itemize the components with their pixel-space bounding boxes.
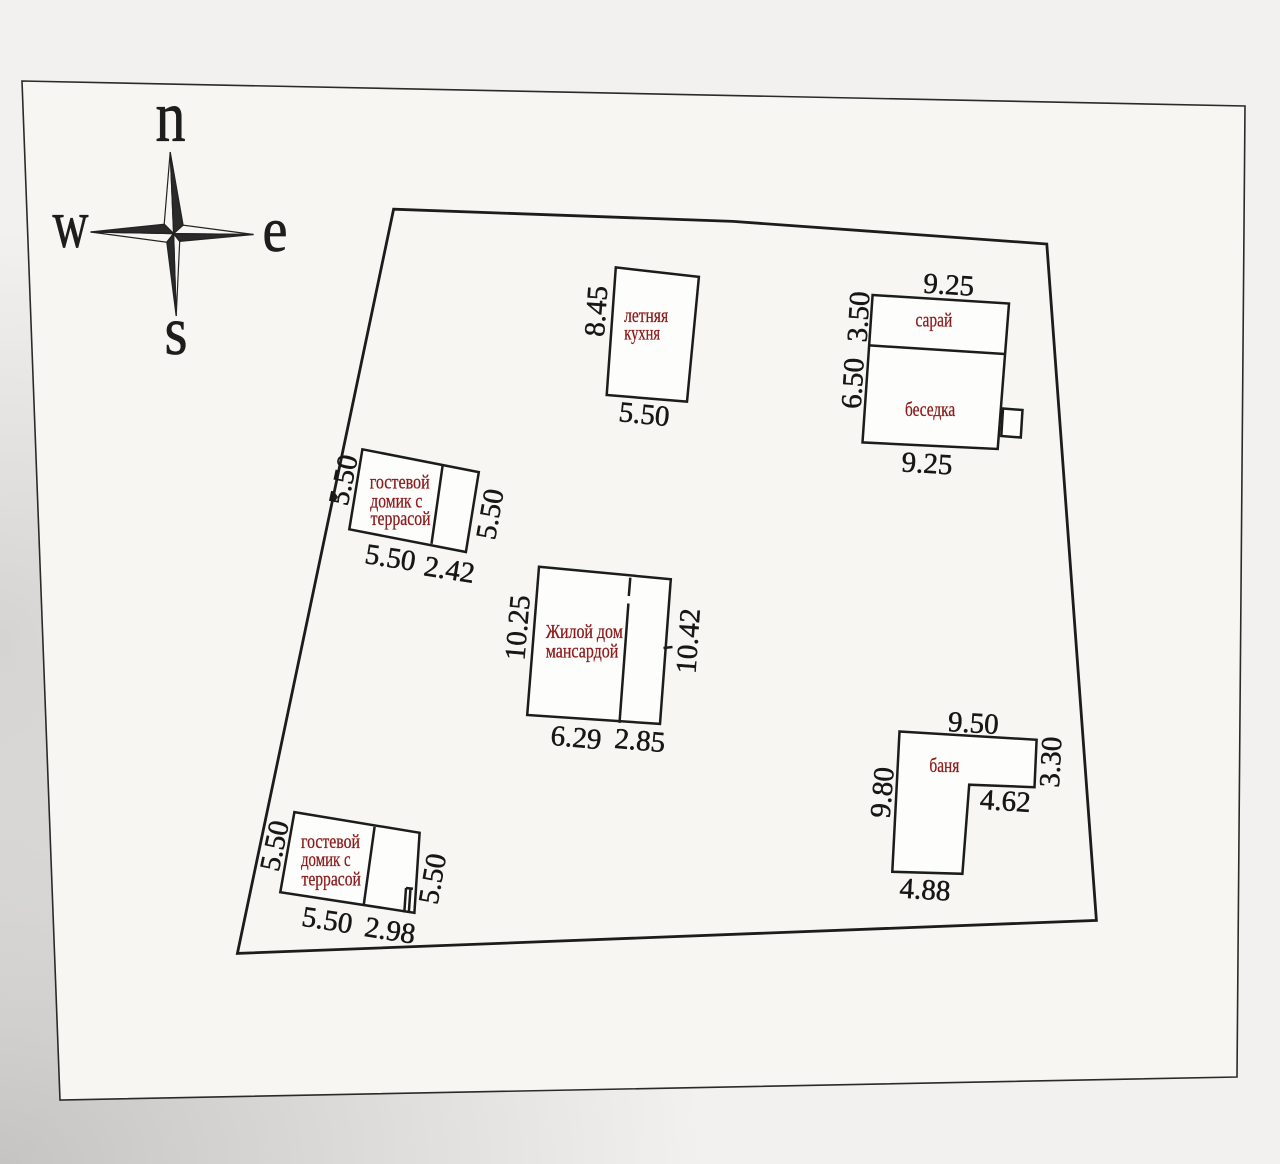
svg-text:6.29: 6.29 <box>549 720 602 756</box>
svg-text:террасой: террасой <box>371 509 431 530</box>
svg-text:9.25: 9.25 <box>901 446 954 481</box>
svg-text:4.88: 4.88 <box>899 873 952 908</box>
svg-text:2.85: 2.85 <box>613 723 666 759</box>
svg-text:9.80: 9.80 <box>865 766 901 819</box>
svg-text:3.50: 3.50 <box>841 290 876 343</box>
svg-text:10.25: 10.25 <box>499 594 537 662</box>
svg-text:террасой: террасой <box>302 870 361 891</box>
svg-text:Жилой дом: Жилой дом <box>546 622 623 643</box>
svg-text:w: w <box>53 186 89 262</box>
svg-text:10.42: 10.42 <box>670 607 706 674</box>
svg-text:9.50: 9.50 <box>947 706 1000 741</box>
svg-text:6.50: 6.50 <box>836 357 871 410</box>
svg-text:5.50: 5.50 <box>617 396 671 433</box>
svg-text:9.25: 9.25 <box>922 268 975 303</box>
svg-text:беседка: беседка <box>905 400 955 421</box>
svg-text:n: n <box>156 76 186 157</box>
svg-text:домик с: домик с <box>301 850 351 871</box>
svg-text:баня: баня <box>929 756 959 777</box>
svg-text:4.62: 4.62 <box>979 784 1032 819</box>
svg-text:мансардой: мансардой <box>546 641 619 662</box>
svg-text:e: e <box>263 194 288 265</box>
svg-text:кухня: кухня <box>624 324 660 345</box>
svg-text:8.45: 8.45 <box>579 285 614 338</box>
svg-text:3.30: 3.30 <box>1034 736 1069 788</box>
svg-text:сарай: сарай <box>916 310 953 331</box>
